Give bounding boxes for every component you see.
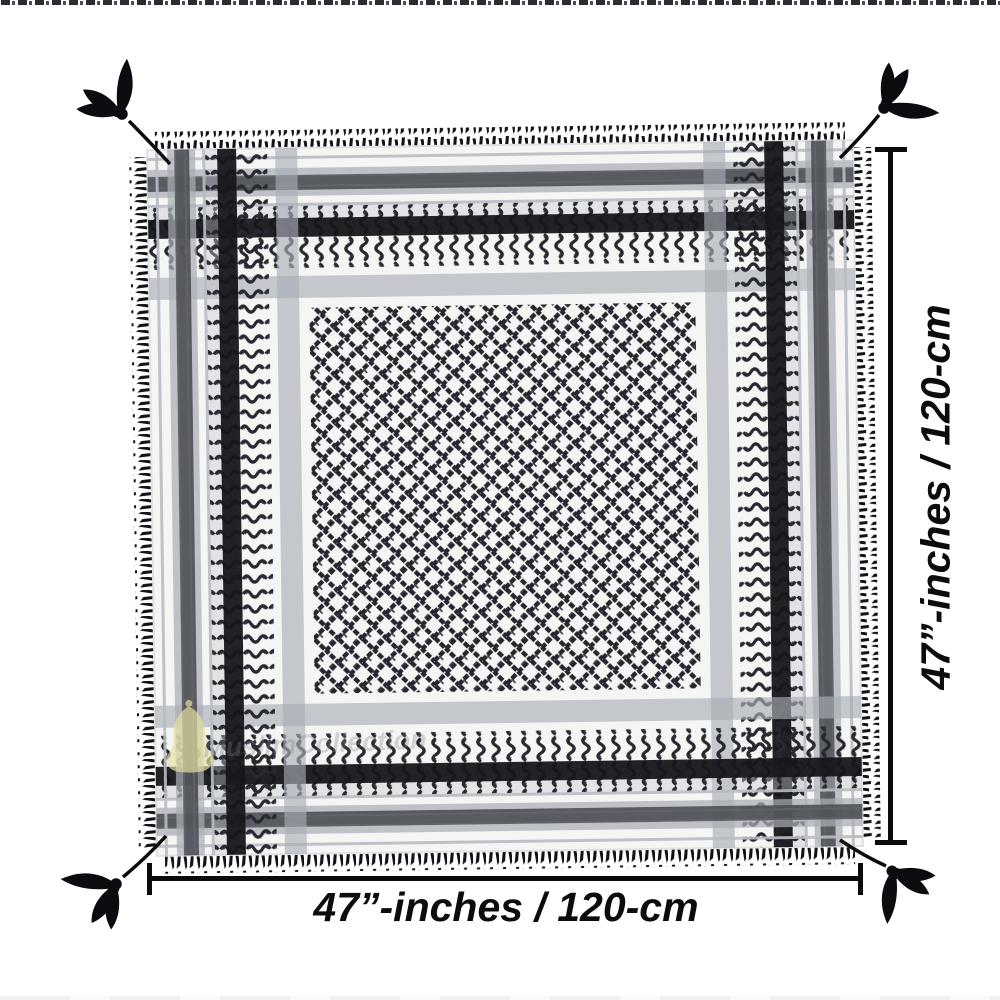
scarf: MuslimCollection [129, 122, 881, 874]
dimension-cap-top [875, 147, 907, 152]
dimension-bar [888, 147, 893, 845]
height-dimension-label: 47”-inches / 120-cm [913, 304, 960, 689]
dimension-cap-bottom [875, 840, 907, 845]
product-photo: MuslimCollection 47”-inches / 120-cm 47”… [0, 0, 1000, 1000]
dimension-bar [147, 876, 863, 881]
keffiyeh-scarf-image: MuslimCollection [0, 0, 1000, 1000]
width-dimension-line [147, 876, 863, 881]
corner-tassel-top-right [860, 56, 946, 142]
corner-tassel-top-left [70, 52, 156, 138]
center-net-pattern [309, 302, 700, 693]
corner-tassel-bottom-left [54, 850, 140, 936]
height-dimension-line [888, 147, 893, 845]
width-dimension-label: 47”-inches / 120-cm [150, 884, 862, 931]
